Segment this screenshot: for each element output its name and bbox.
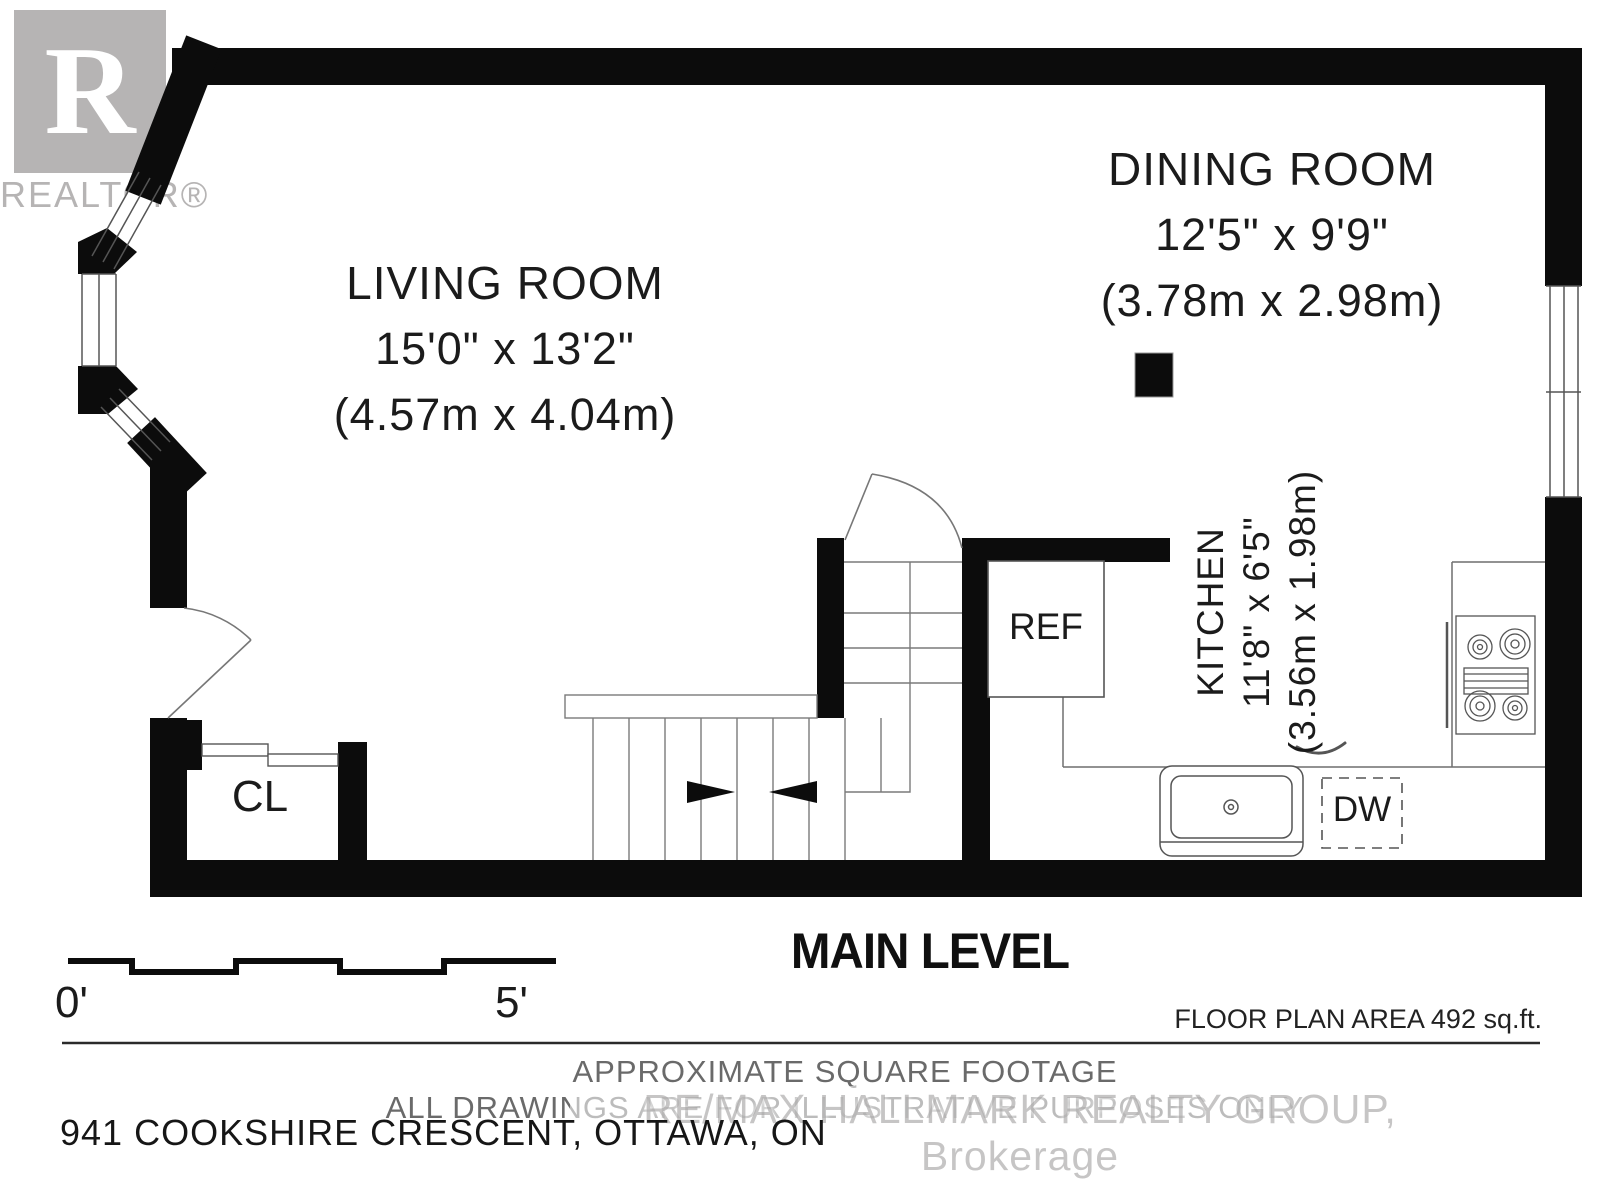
dining-room-label: DINING ROOM 12'5" x 9'9" (3.78m x 2.98m): [1022, 136, 1522, 334]
stairwell-wall-left: [817, 538, 844, 718]
scale-end-label: 5': [495, 978, 528, 1028]
stair-arrow-left-icon: [769, 781, 817, 803]
stair-direction-line: [845, 562, 910, 792]
stair-landing-edge: [565, 695, 817, 718]
entry-door: [168, 608, 251, 718]
dining-room-name: DINING ROOM: [1022, 136, 1522, 202]
stove-icon: [1447, 616, 1535, 734]
living-room-name: LIVING ROOM: [255, 250, 755, 316]
stair-door-arc: [872, 474, 962, 548]
dishwasher-label: DW: [1322, 790, 1402, 830]
wall-angled-top: [150, 60, 197, 180]
scale-bar: [68, 961, 556, 972]
closet-wall-right: [338, 742, 367, 860]
wall-bottom: [150, 860, 1582, 897]
wall-above-ref: [962, 538, 1170, 562]
living-room-size-metric: (4.57m x 4.04m): [255, 382, 755, 448]
wall-right-upper: [1545, 48, 1582, 286]
closet-wall-stub: [150, 720, 202, 770]
entry-door-leaf: [168, 640, 251, 718]
stair-treads-upper: [844, 562, 962, 683]
wall-right-lower: [1545, 497, 1582, 897]
scale-start-label: 0': [55, 978, 88, 1028]
dining-room-size-imperial: 12'5" x 9'9": [1022, 202, 1522, 268]
stair-door-leaf: [845, 474, 872, 540]
bay-window-mask: [80, 172, 170, 460]
floor-plan-area-note: FLOOR PLAN AREA 492 sq.ft.: [1042, 1004, 1542, 1035]
refrigerator-label: REF: [988, 606, 1104, 648]
kitchen-label: KITCHEN 11'8" x 6'5" (3.56m x 1.98m): [1188, 422, 1338, 802]
property-address: 941 COOKSHIRE CRESCENT, OTTAWA, ON: [60, 1112, 827, 1154]
living-room-label: LIVING ROOM 15'0" x 13'2" (4.57m x 4.04m…: [255, 250, 755, 448]
stairwell-wall-right: [962, 562, 990, 860]
dining-room-size-metric: (3.78m x 2.98m): [1022, 268, 1522, 334]
right-wall-window: [1546, 286, 1581, 497]
stair-treads-lower: [593, 718, 881, 860]
disclaimer-line-1: APPROXIMATE SQUARE FOOTAGE: [255, 1054, 1435, 1090]
dining-column: [1135, 353, 1173, 397]
entry-door-arc: [184, 608, 251, 640]
closet-label: CL: [185, 772, 335, 822]
closet-bifold-doors: [202, 744, 338, 766]
stair-door: [845, 474, 962, 548]
wall-top: [172, 48, 1582, 85]
staircase: [565, 562, 962, 860]
kitchen-name: KITCHEN: [1188, 422, 1234, 802]
kitchen-size-imperial: 11'8" x 6'5": [1234, 422, 1280, 802]
kitchen-size-metric: (3.56m x 1.98m): [1280, 422, 1326, 802]
level-title: MAIN LEVEL: [645, 922, 1215, 980]
stair-arrow-right-icon: [687, 781, 735, 803]
living-room-size-imperial: 15'0" x 13'2": [255, 316, 755, 382]
floor-plan-page: R REALTOR®: [0, 0, 1600, 1161]
